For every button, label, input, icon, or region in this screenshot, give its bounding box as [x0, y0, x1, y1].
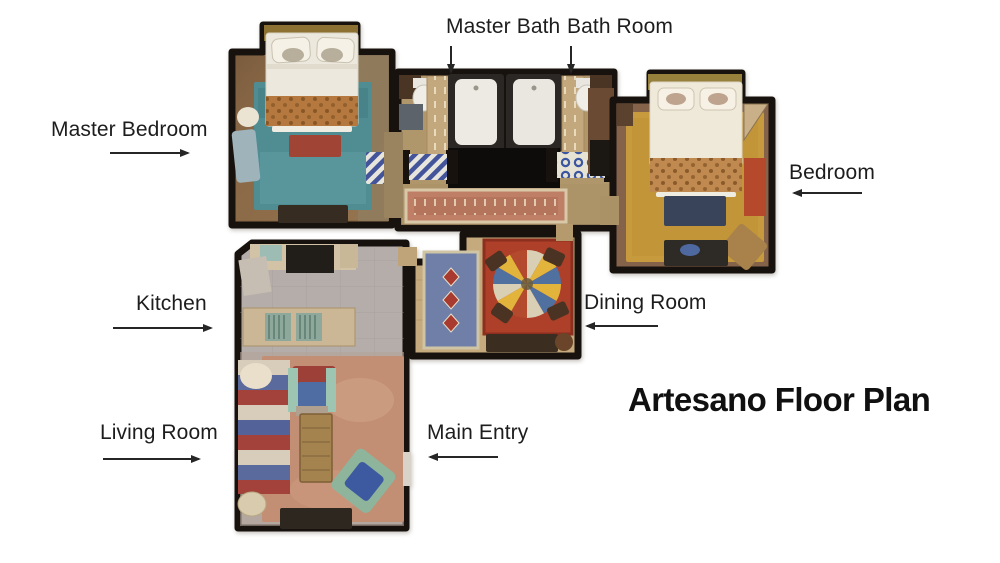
- label-bedroom: Bedroom: [789, 161, 875, 185]
- stairwell: [448, 148, 560, 188]
- bedroom-room: [613, 73, 772, 272]
- label-dining-room: Dining Room: [584, 291, 707, 315]
- bed-end-bench: [664, 196, 726, 226]
- living-room-arrow: [103, 458, 199, 460]
- hallway-runner-rug: [406, 190, 566, 222]
- master-bath-sink: [399, 104, 423, 130]
- stove: [286, 245, 334, 273]
- red-bench: [289, 135, 341, 157]
- floor-plan-image: Master Bath Bath Room Master Bedroom Bed…: [0, 0, 1000, 563]
- bathrooms-and-hallway: [398, 72, 616, 228]
- dining-room: [412, 234, 578, 356]
- master-bed: [264, 25, 358, 132]
- bath-room-tub: [506, 74, 562, 152]
- master-bath-arrow: [450, 46, 452, 72]
- nightstand: [617, 104, 633, 126]
- bath-room-arrow: [570, 46, 572, 72]
- lamp: [237, 107, 259, 127]
- bedroom-bed: [648, 74, 742, 197]
- media-console: [280, 508, 352, 529]
- kitchen-living-room: [238, 243, 406, 529]
- sideboard: [486, 334, 558, 352]
- floor-plan-title: Artesano Floor Plan: [628, 381, 930, 419]
- label-main-entry: Main Entry: [427, 421, 528, 445]
- dining-room-arrow: [587, 325, 658, 327]
- pouf: [240, 363, 272, 389]
- coffee-table: [300, 414, 332, 482]
- red-desk: [744, 158, 766, 216]
- hall-bench-left: [398, 150, 458, 184]
- armchair: [288, 366, 336, 416]
- label-kitchen: Kitchen: [136, 292, 207, 316]
- kitchen-arrow: [113, 327, 211, 329]
- pot: [555, 333, 573, 351]
- floor-plan-drawing: [0, 0, 1000, 563]
- dining-blue-rug: [424, 252, 478, 348]
- master-bedroom-arrow: [110, 152, 188, 154]
- label-bath-room: Bath Room: [567, 15, 673, 39]
- kitchen-island: [243, 308, 355, 346]
- master-dresser: [278, 205, 348, 223]
- main-entry-arrow: [430, 456, 498, 458]
- master-bedroom-room: [231, 25, 392, 225]
- hall-dresser: [590, 140, 612, 176]
- basket: [238, 492, 266, 516]
- master-bath-tub: [448, 74, 504, 152]
- bedroom-arrow: [794, 192, 862, 194]
- label-master-bath: Master Bath: [446, 15, 560, 39]
- label-master-bedroom: Master Bedroom: [51, 118, 208, 142]
- main-entry-door: [403, 452, 411, 486]
- label-living-room: Living Room: [100, 421, 218, 445]
